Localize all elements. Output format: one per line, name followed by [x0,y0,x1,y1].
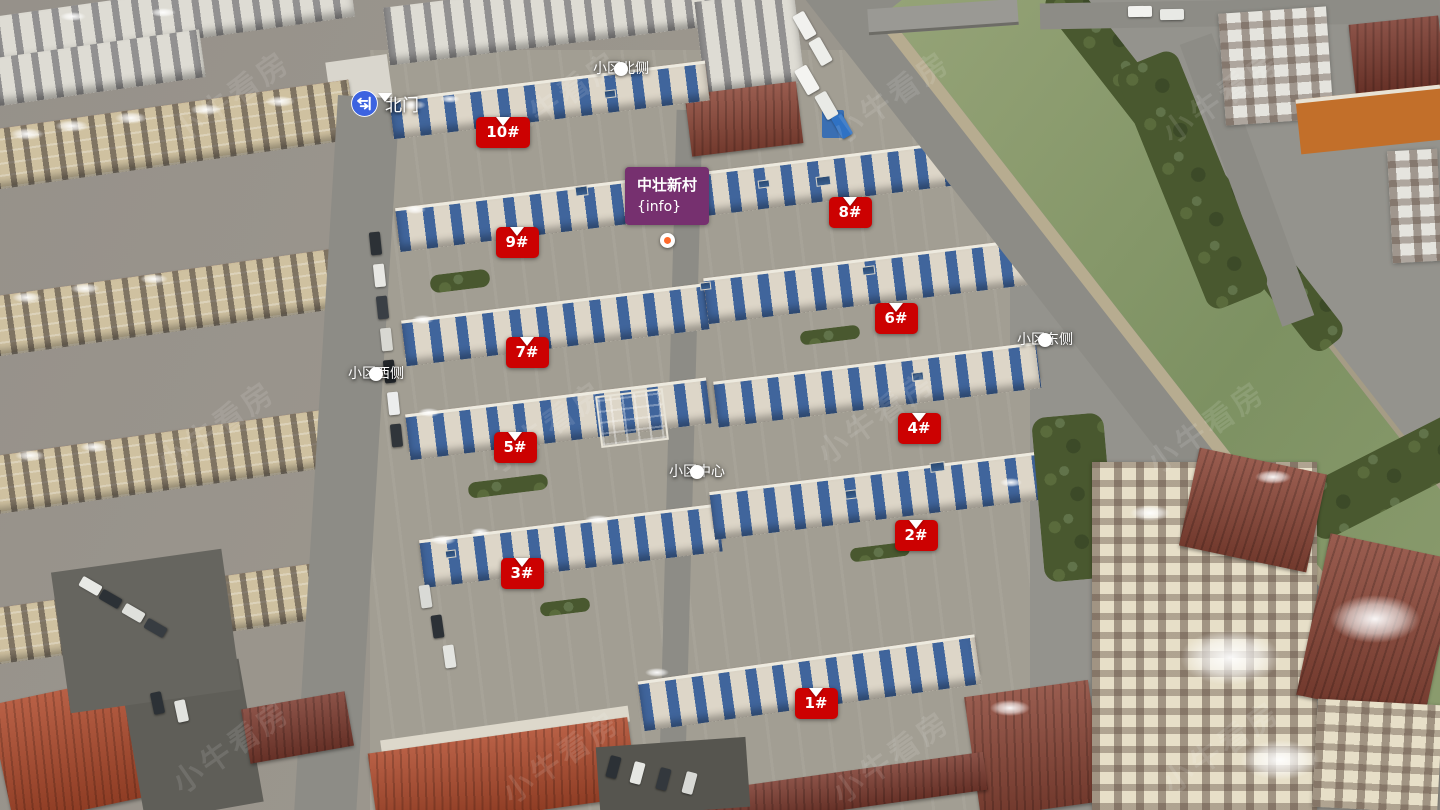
solar-heater [911,371,924,381]
car [369,231,382,255]
northeast-building [1387,149,1440,263]
direction-dot [614,62,628,76]
snow-patch [1330,595,1420,643]
northeast-roof [1349,15,1440,94]
snow-patch [60,12,86,21]
marker-pointer [912,413,926,422]
snow-patch [190,104,222,115]
car [373,263,386,287]
snow-patch [1240,740,1320,780]
solar-heater [844,489,857,499]
marker-pointer [510,227,524,236]
snow-patch [418,408,440,417]
marker-pointer [809,688,823,697]
snow-patch [10,128,44,140]
solar-array [595,388,669,448]
snow-patch [470,528,490,536]
north-gate-marker[interactable]: 北门 [351,90,419,117]
snow-patch [12,292,42,303]
solar-heater [862,265,876,276]
solar-heater [815,175,831,187]
community-label[interactable]: 中壮新村 {info} [625,167,709,248]
south-alley [596,737,751,810]
snow-patch [70,283,100,294]
snow-patch [430,535,456,545]
marker-pointer [496,117,510,126]
tall-block [694,0,793,2]
snow-patch [1000,478,1022,487]
solar-heater [604,89,617,98]
direction-dot [369,367,383,381]
snow-patch [990,700,1030,716]
car [1160,9,1184,20]
community-name: 中壮新村 [637,175,697,197]
solar-heater [758,179,771,188]
snow-patch [1180,630,1280,685]
snow-patch [80,442,108,452]
west-parking [51,549,241,714]
marker-pointer [515,558,529,567]
southeast-building [1312,699,1440,810]
west-block [0,407,343,457]
marker-pointer [843,197,857,206]
community-info: {info} [637,197,697,217]
snow-patch [55,120,89,132]
snow-patch [585,515,611,524]
snow-patch [404,205,426,214]
snow-patch [1130,505,1170,521]
building-1-annex [964,680,1105,810]
marker-pointer [909,520,923,529]
car [390,423,403,447]
west-block [0,247,348,298]
solar-heater [929,461,945,473]
car [376,295,389,319]
gate-pointer [378,93,392,102]
marker-pointer [889,303,903,312]
solar-heater [574,185,588,197]
snow-patch [440,95,460,103]
community-marker-dot [659,233,674,248]
car [1128,6,1152,17]
snow-patch [150,8,176,17]
gate-entrance-icon [351,90,378,117]
scenery-block [0,247,357,357]
scenery-block [694,0,804,93]
solar-heater [445,549,457,558]
snow-patch [1255,470,1291,484]
marker-pointer [520,337,534,346]
solar-heater [700,281,712,290]
snow-patch [412,315,434,324]
scenery-block [0,407,351,515]
scenery-block [663,237,670,244]
direction-dot [690,465,704,479]
snow-patch [140,274,168,284]
snow-patch [265,96,295,107]
north-row [383,0,706,8]
car [387,391,400,415]
snow-patch [115,112,147,124]
car [380,327,393,351]
snow-patch [645,668,669,677]
community-label-box: 中壮新村 {info} [625,167,709,225]
direction-dot [1038,333,1052,347]
marker-pointer [508,432,522,441]
snow-patch [15,450,45,461]
aerial-map-view: 中壮新村 {info} 北门 小牛看房小牛看房小牛看房小牛看房小牛看房小牛看房小… [0,0,1440,810]
